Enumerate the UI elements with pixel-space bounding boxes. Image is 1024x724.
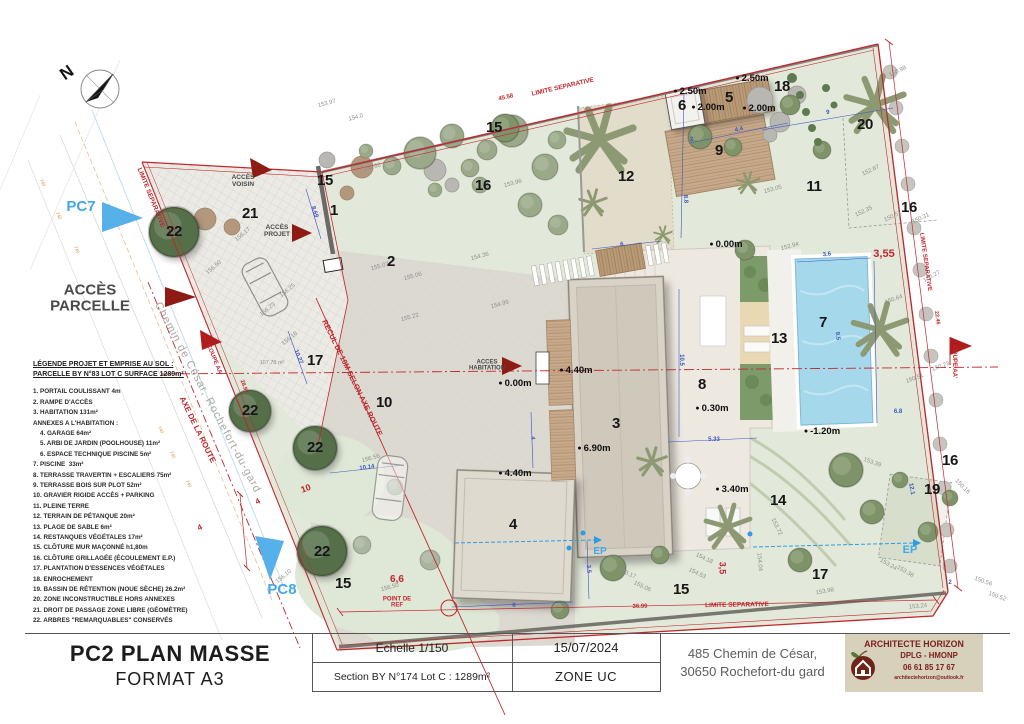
format-label: FORMAT A3 (40, 669, 300, 690)
architect-email: architectehorizon@outlook.fr (875, 675, 983, 681)
date-cell: 15/07/2024 (512, 633, 660, 663)
entry-steps (536, 352, 549, 384)
house (568, 276, 673, 557)
legend-item: 5. ARBI DE JARDIN (POOLHOUSE) 11m² (33, 439, 223, 449)
pool (767, 247, 877, 433)
scale-cell: Echelle 1/150 (312, 633, 512, 663)
legend-item: 14. RESTANQUES VÉGÉTALES 17m² (33, 533, 223, 543)
zone-cell: ZONE UC (512, 662, 660, 691)
legend-item: 1. PORTAIL COULISSANT 4m (33, 387, 223, 397)
table-border (512, 633, 513, 691)
pc8-arrow (255, 536, 284, 580)
garage (453, 470, 575, 602)
legend-item: 18. ENROCHEMENT (33, 575, 223, 585)
architect-name: ARCHITECTE HORIZON (845, 639, 983, 649)
legend-item: 20. ZONE INCONSTRUCTIBLE HORS ANNEXES (33, 595, 223, 605)
title-block: PC2 PLAN MASSE FORMAT A3 Echelle 1/150 S… (0, 633, 1024, 724)
architect-phone: 06 61 85 17 67 (875, 663, 983, 672)
side-deck (546, 320, 576, 481)
legend-item: 19. BASSIN DE RÉTENTION (NOUE SÈCHE) 26.… (33, 585, 223, 595)
legend-item: 11. PLEINE TERRE (33, 502, 223, 512)
north-compass (81, 70, 119, 108)
table-border (312, 633, 313, 691)
legend: LÉGENDE PROJET ET EMPRISE AU SOL : PARCE… (33, 360, 223, 627)
legend-item: 2. RAMPE D'ACCÈS (33, 398, 223, 408)
legend-title-line1: LÉGENDE PROJET ET EMPRISE AU SOL : (33, 360, 223, 370)
architect-title: DPLG - HMONP (875, 651, 983, 660)
architect-stamp: ARCHITECTE HORIZON DPLG - HMONP 06 61 85… (845, 634, 983, 692)
legend-item: 22. ARBRES "REMARQUABLES" CONSERVÉS (33, 616, 223, 626)
page-title: PC2 PLAN MASSE (40, 641, 300, 667)
legend-item: ANNEXES A L'HABITATION : (33, 419, 223, 429)
pc7-arrow (102, 202, 143, 232)
legend-item: 16. CLÔTURE GRILLAGÉE (ÉCOULEMENT E.P.) (33, 554, 223, 564)
legend-item: 17. PLANTATION D'ESSENCES VÉGÉTALES (33, 564, 223, 574)
legend-title-line2: PARCELLE BY N°83 LOT C SURFACE 1289m² (33, 370, 223, 380)
address-line1: 485 Chemin de César, (665, 645, 840, 663)
legend-item: 9. TERRASSE BOIS SUR PLOT 52m² (33, 481, 223, 491)
legend-item: 8. TERRASSE TRAVERTIN + ESCALIERS 75m² (33, 471, 223, 481)
legend-item: 7. PISCINE 33m² (33, 460, 223, 470)
legend-item: 21. DROIT DE PASSAGE ZONE LIBRE (GÉOMÈTR… (33, 606, 223, 616)
plan-masse-page: 2222222221201815151515161616121211569101… (0, 0, 1024, 724)
table-border (660, 633, 661, 692)
legend-item: 3. HABITATION 131m² (33, 408, 223, 418)
address-line2: 30650 Rochefort-du gard (665, 663, 840, 681)
project-address: 485 Chemin de César, 30650 Rochefort-du … (665, 645, 840, 680)
legend-item: 13. PLAGE DE SABLE 6m² (33, 523, 223, 533)
legend-item: 15. CLÔTURE MUR MAÇONNÉ h1,80m (33, 543, 223, 553)
table-border (312, 691, 660, 692)
legend-item: 4. GARAGE 64m² (33, 429, 223, 439)
legend-item: 6. ESPACE TECHNIQUE PISCINE 5m² (33, 450, 223, 460)
legend-item: 12. TERRAIN DE PÉTANQUE 20m² (33, 512, 223, 522)
section-cell: Section BY N°174 Lot C : 1289m² (312, 662, 512, 691)
document-title: PC2 PLAN MASSE FORMAT A3 (40, 641, 300, 690)
legend-item: 10. GRAVIER RIGIDE ACCÈS + PARKING (33, 491, 223, 501)
